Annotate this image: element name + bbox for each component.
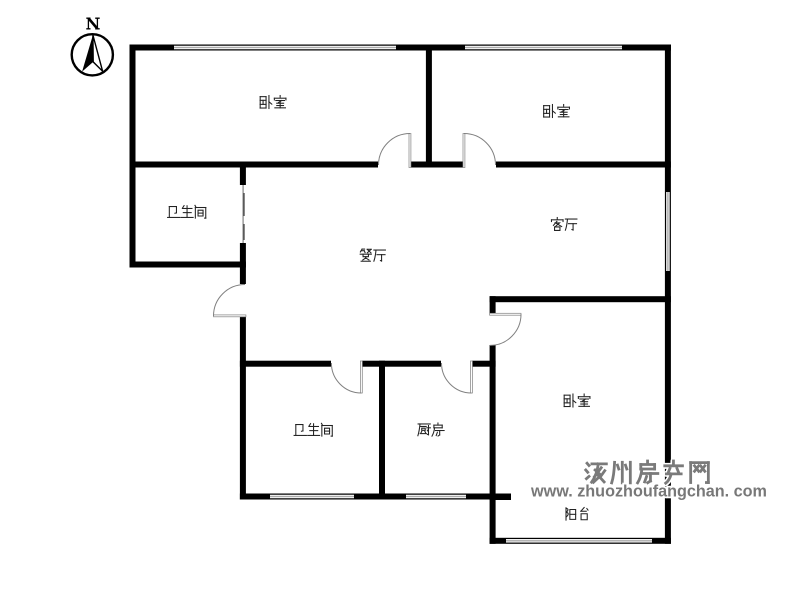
svg-text:www. zhuozhoufangchan. com: www. zhuozhoufangchan. com	[530, 482, 767, 500]
